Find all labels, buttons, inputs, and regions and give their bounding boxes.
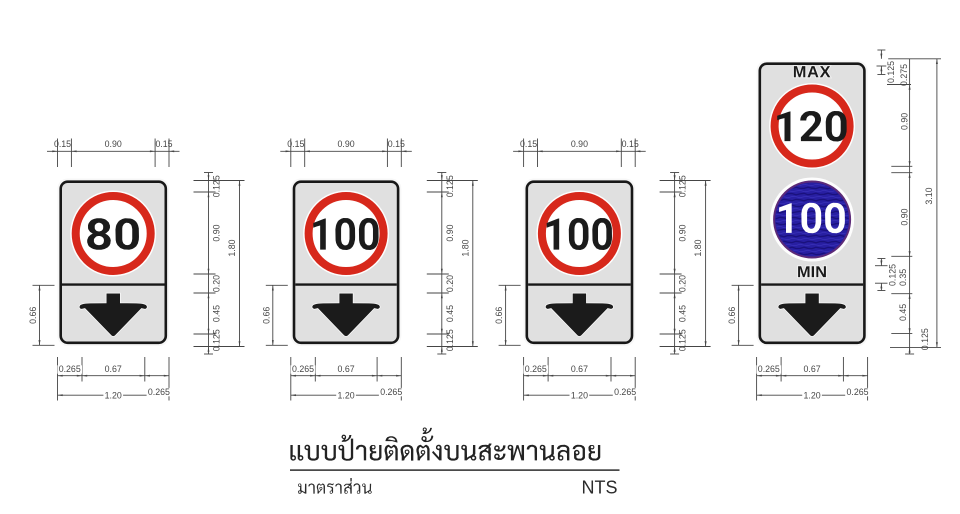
svg-text:0.15: 0.15	[622, 139, 639, 149]
svg-text:1.80: 1.80	[693, 239, 703, 256]
svg-text:0.275: 0.275	[899, 64, 909, 86]
svg-text:0.90: 0.90	[445, 224, 455, 241]
svg-text:0.45: 0.45	[212, 305, 222, 322]
svg-text:0.125: 0.125	[678, 329, 688, 351]
svg-text:0.265: 0.265	[380, 387, 402, 397]
svg-text:0.125: 0.125	[445, 329, 455, 351]
svg-text:0.45: 0.45	[678, 305, 688, 322]
svg-text:0.15: 0.15	[287, 139, 304, 149]
svg-text:0.125: 0.125	[886, 61, 896, 83]
svg-text:0.265: 0.265	[59, 364, 81, 374]
svg-text:0.15: 0.15	[388, 139, 405, 149]
svg-text:3.10: 3.10	[924, 187, 934, 204]
svg-text:0.66: 0.66	[261, 307, 271, 324]
svg-text:0.15: 0.15	[520, 139, 537, 149]
svg-text:1.80: 1.80	[460, 239, 470, 256]
svg-text:0.90: 0.90	[212, 224, 222, 241]
svg-text:0.20: 0.20	[678, 275, 688, 292]
svg-text:0.90: 0.90	[678, 224, 688, 241]
svg-text:0.265: 0.265	[846, 387, 868, 397]
svg-text:0.265: 0.265	[614, 387, 636, 397]
svg-text:0.90: 0.90	[338, 139, 355, 149]
svg-text:0.66: 0.66	[494, 307, 504, 324]
svg-text:0.265: 0.265	[758, 364, 780, 374]
svg-text:0.15: 0.15	[54, 139, 71, 149]
svg-text:0.67: 0.67	[338, 364, 355, 374]
svg-text:0.125: 0.125	[678, 175, 688, 197]
svg-text:0.125: 0.125	[920, 328, 930, 350]
svg-text:0.265: 0.265	[525, 364, 547, 374]
svg-text:0.67: 0.67	[105, 364, 122, 374]
svg-text:1.20: 1.20	[338, 391, 355, 401]
svg-text:NTS: NTS	[582, 478, 618, 498]
svg-text:0.45: 0.45	[898, 304, 908, 321]
svg-text:0.125: 0.125	[445, 175, 455, 197]
svg-text:0.125: 0.125	[212, 175, 222, 197]
svg-text:1.20: 1.20	[105, 391, 122, 401]
svg-text:1.20: 1.20	[571, 391, 588, 401]
svg-text:0.35: 0.35	[898, 269, 908, 286]
svg-text:1.80: 1.80	[227, 239, 237, 256]
svg-text:0.66: 0.66	[727, 307, 737, 324]
svg-text:0.265: 0.265	[148, 387, 170, 397]
svg-text:0.90: 0.90	[571, 139, 588, 149]
svg-text:0.20: 0.20	[445, 275, 455, 292]
svg-text:0.45: 0.45	[445, 305, 455, 322]
svg-text:0.265: 0.265	[292, 364, 314, 374]
svg-text:0.90: 0.90	[900, 113, 910, 130]
svg-text:0.20: 0.20	[212, 275, 222, 292]
svg-text:0.90: 0.90	[105, 139, 122, 149]
svg-text:0.66: 0.66	[28, 307, 38, 324]
svg-text:0.67: 0.67	[571, 364, 588, 374]
svg-text:1.20: 1.20	[804, 391, 821, 401]
svg-text:0.67: 0.67	[804, 364, 821, 374]
svg-text:0.125: 0.125	[888, 264, 898, 286]
svg-text:0.125: 0.125	[212, 329, 222, 351]
svg-text:0.15: 0.15	[155, 139, 172, 149]
svg-text:0.90: 0.90	[900, 208, 910, 225]
